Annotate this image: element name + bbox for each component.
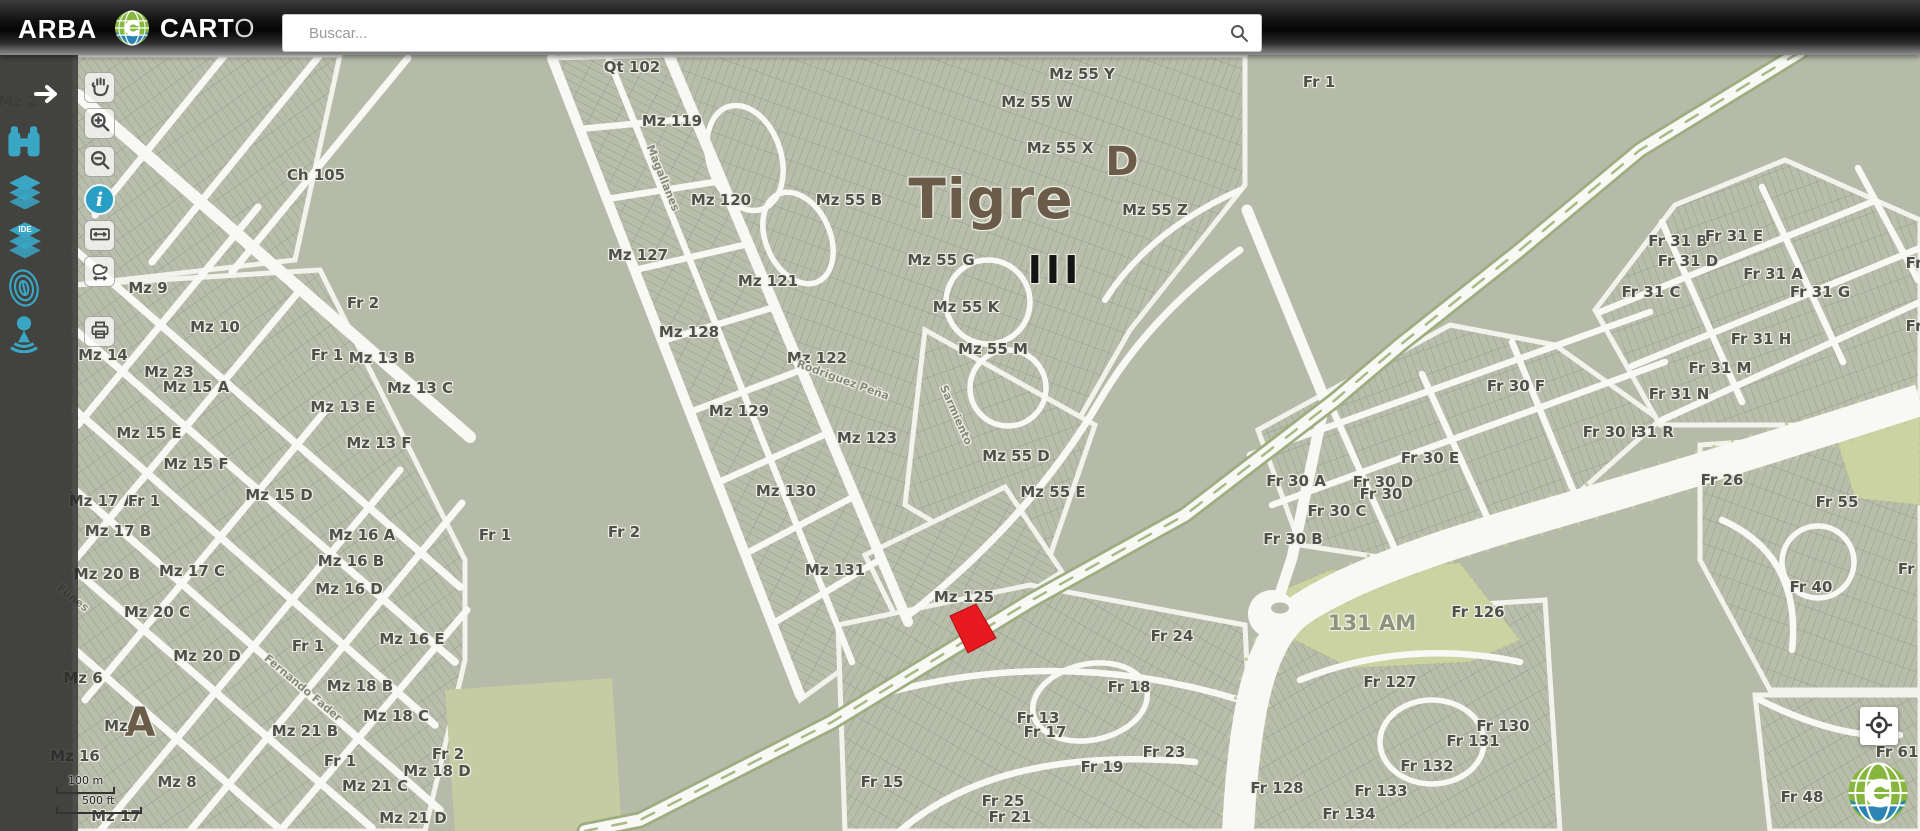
fingerprint-icon <box>6 268 42 308</box>
sidebar-item-layers[interactable] <box>6 172 62 214</box>
search-icon <box>1229 23 1249 43</box>
zoom-out-button[interactable] <box>84 146 115 177</box>
ide-layers-icon: IDE <box>6 221 44 259</box>
carto-watermark <box>1845 760 1911 831</box>
crosshair-icon <box>1864 710 1894 740</box>
sidebar-item-ide-layers[interactable]: IDE <box>6 220 62 262</box>
layers-icon <box>6 175 44 209</box>
sidebar-item-street-view[interactable] <box>6 314 62 356</box>
info-icon: i <box>96 189 103 211</box>
carto-logo-text: CARTO <box>160 13 255 44</box>
locate-button[interactable] <box>1860 707 1898 745</box>
arba-logo: ARBA <box>18 14 97 45</box>
search-button[interactable] <box>1225 20 1253 48</box>
zoom-in-button[interactable] <box>84 108 115 139</box>
print-icon <box>89 319 111 341</box>
hand-icon <box>89 75 111 97</box>
measure-area-button[interactable] <box>84 256 115 287</box>
scale-imperial-line <box>56 807 142 814</box>
zoom-out-icon <box>89 149 111 171</box>
sidebar: IDE <box>0 0 78 831</box>
sidebar-item-fingerprint[interactable] <box>6 268 62 310</box>
arba-carto-app: Qt 102Mz 119Ch 105Mz 120Mz 55 BMz 55 YMz… <box>0 0 1920 831</box>
carto-globe-icon <box>1845 760 1911 826</box>
header: ARBA CARTO ? <box>0 0 1920 55</box>
map-canvas[interactable] <box>0 0 1920 831</box>
arrow-right-icon <box>34 84 60 104</box>
ide-badge: IDE <box>18 225 31 234</box>
search-box <box>282 14 1262 52</box>
sidebar-expand-button[interactable] <box>34 82 66 108</box>
measure-distance-icon <box>89 223 111 245</box>
identify-tool-button[interactable]: i <box>84 184 115 215</box>
sidebar-item-search-parcel[interactable] <box>6 122 62 164</box>
measure-area-icon <box>89 259 111 281</box>
search-input[interactable] <box>283 15 1261 51</box>
scale-imperial-label: 500 ft <box>82 794 142 807</box>
pan-tool-button[interactable] <box>84 72 115 103</box>
print-button[interactable] <box>84 316 115 347</box>
measure-distance-button[interactable] <box>84 220 115 251</box>
street-view-icon <box>6 315 42 353</box>
carto-logo: CARTO <box>113 9 255 47</box>
scale-bar: 100 m 500 ft <box>56 774 142 814</box>
zoom-in-icon <box>89 111 111 133</box>
scale-metric-label: 100 m <box>68 774 142 787</box>
carto-globe-icon <box>113 9 151 47</box>
scale-metric-line <box>56 787 115 794</box>
binoculars-icon <box>6 125 42 159</box>
